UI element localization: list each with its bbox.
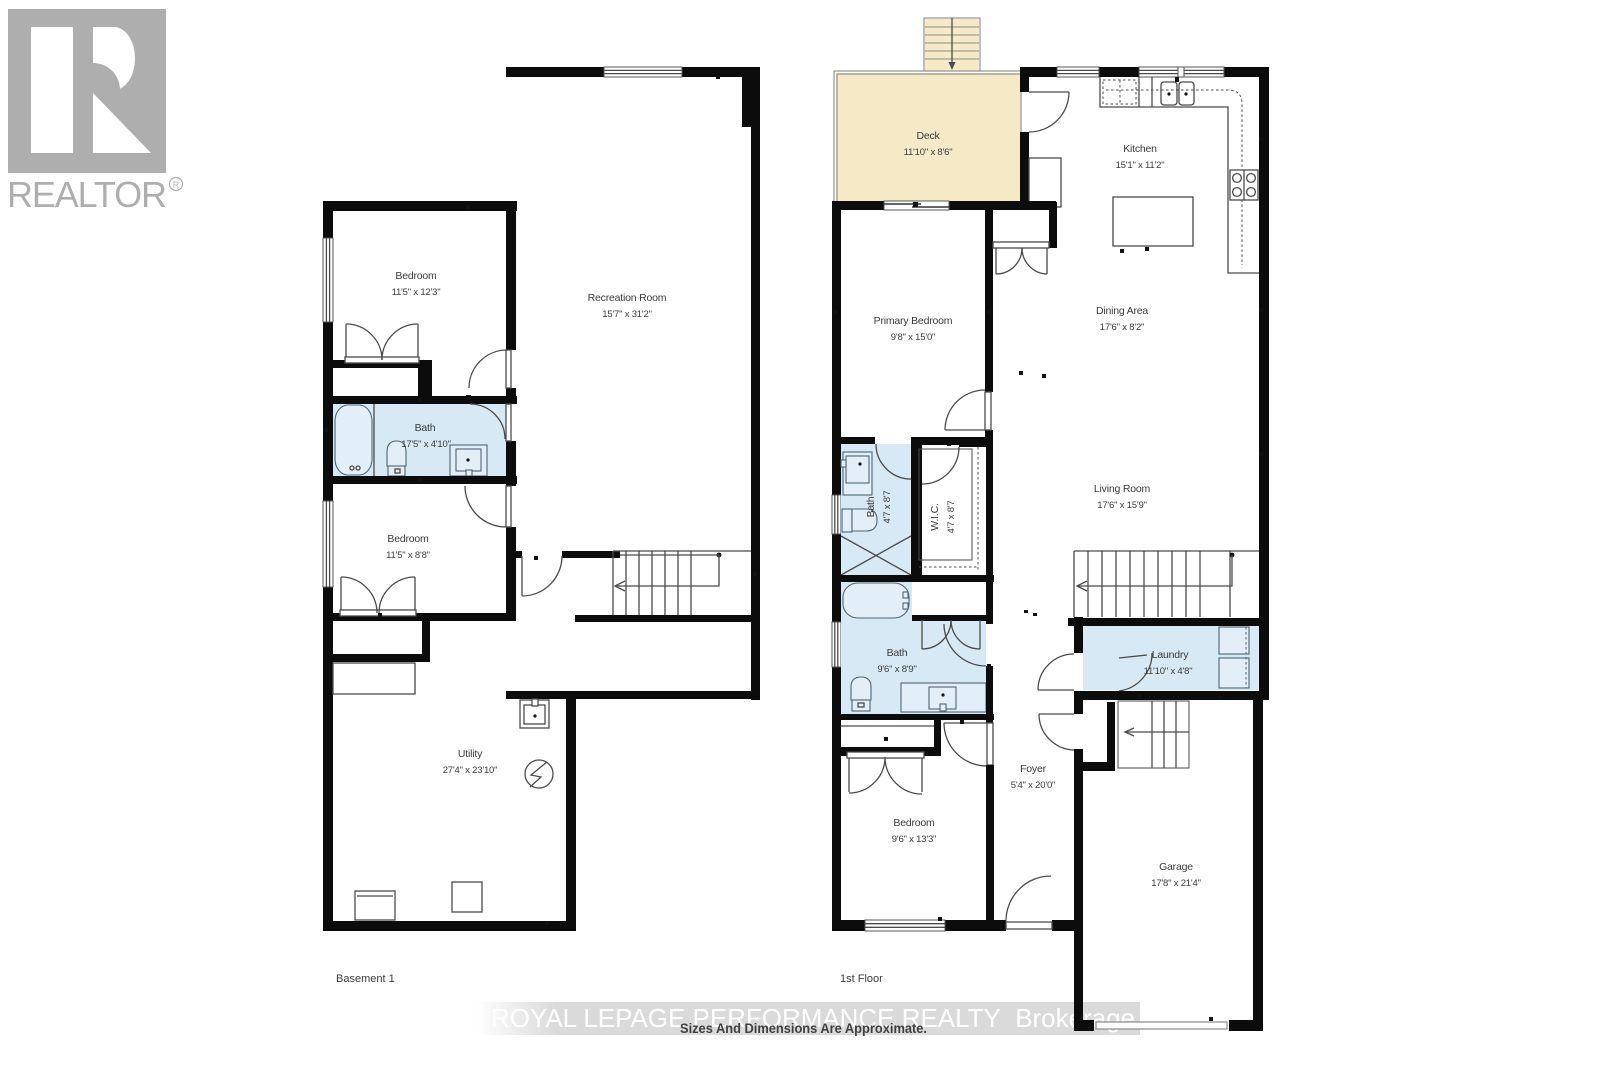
- svg-text:9'6" x 13'3": 9'6" x 13'3": [892, 834, 936, 845]
- svg-text:Recreation Room: Recreation Room: [588, 292, 667, 304]
- svg-text:Primary Bedroom: Primary Bedroom: [874, 315, 953, 327]
- svg-text:Bath: Bath: [415, 422, 436, 434]
- svg-text:15'1" x 11'2": 15'1" x 11'2": [1116, 160, 1165, 171]
- svg-text:Bedroom: Bedroom: [893, 817, 935, 829]
- svg-text:11'5" x 8'8": 11'5" x 8'8": [386, 550, 430, 561]
- svg-text:1st Floor: 1st Floor: [840, 973, 883, 985]
- svg-text:Sizes And Dimensions Are Appro: Sizes And Dimensions Are Approximate.: [680, 1020, 927, 1036]
- svg-text:17'8" x 21'4": 17'8" x 21'4": [1151, 878, 1201, 889]
- svg-text:Kitchen: Kitchen: [1123, 143, 1157, 155]
- svg-text:W.I.C.: W.I.C.: [929, 503, 941, 530]
- svg-text:9'8" x 15'0": 9'8" x 15'0": [891, 332, 935, 343]
- svg-text:R: R: [173, 180, 180, 190]
- svg-text:5'4" x 20'0": 5'4" x 20'0": [1011, 780, 1055, 791]
- svg-text:11'10" x 4'8": 11'10" x 4'8": [1144, 666, 1193, 677]
- svg-text:Bedroom: Bedroom: [387, 533, 429, 545]
- svg-text:Bath: Bath: [865, 496, 877, 517]
- svg-text:27'4" x 23'10": 27'4" x 23'10": [443, 765, 498, 776]
- svg-text:Bath: Bath: [887, 647, 908, 659]
- svg-text:Bedroom: Bedroom: [395, 270, 437, 282]
- svg-text:17'6" x 8'2": 17'6" x 8'2": [1100, 322, 1144, 333]
- svg-text:Basement 1: Basement 1: [336, 973, 395, 985]
- svg-text:Laundry: Laundry: [1152, 649, 1189, 661]
- svg-text:9'6" x 8'9": 9'6" x 8'9": [877, 664, 916, 675]
- svg-text:Deck: Deck: [916, 130, 940, 142]
- svg-text:Dining Area: Dining Area: [1096, 305, 1148, 317]
- svg-text:4'7 x 8'7: 4'7 x 8'7: [946, 501, 957, 534]
- svg-text:15'7" x 31'2": 15'7" x 31'2": [602, 309, 652, 320]
- svg-text:Living Room: Living Room: [1094, 483, 1151, 495]
- svg-text:Utility: Utility: [458, 748, 483, 760]
- svg-text:11'10" x 8'6": 11'10" x 8'6": [904, 147, 953, 158]
- svg-text:Foyer: Foyer: [1020, 763, 1047, 775]
- svg-text:4'7 x 8'7: 4'7 x 8'7: [882, 491, 893, 524]
- svg-text:17'5" x 4'10": 17'5" x 4'10": [401, 439, 451, 450]
- svg-text:11'5" x 12'3": 11'5" x 12'3": [392, 287, 441, 298]
- svg-text:REALTOR: REALTOR: [7, 174, 167, 215]
- svg-text:17'6" x 15'9": 17'6" x 15'9": [1097, 500, 1147, 511]
- svg-text:Garage: Garage: [1159, 861, 1193, 873]
